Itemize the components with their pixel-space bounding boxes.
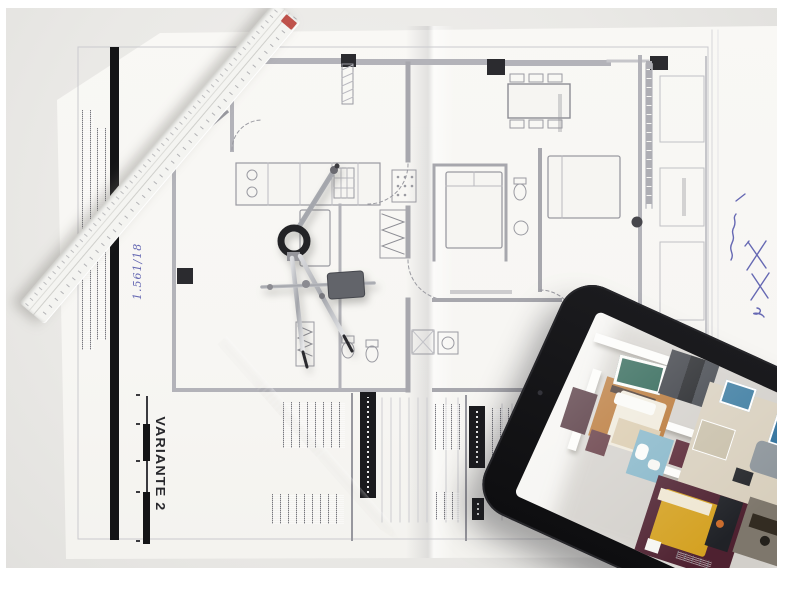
tablet-camera-icon [537, 389, 544, 396]
photo-architect-desk: 1.561/18 VARIANTE 2 [0, 0, 800, 600]
photo-frame-bottom [0, 568, 800, 600]
photo-frame-top [0, 0, 800, 8]
photo-frame-right [777, 0, 800, 600]
photo-frame-left [0, 0, 6, 600]
